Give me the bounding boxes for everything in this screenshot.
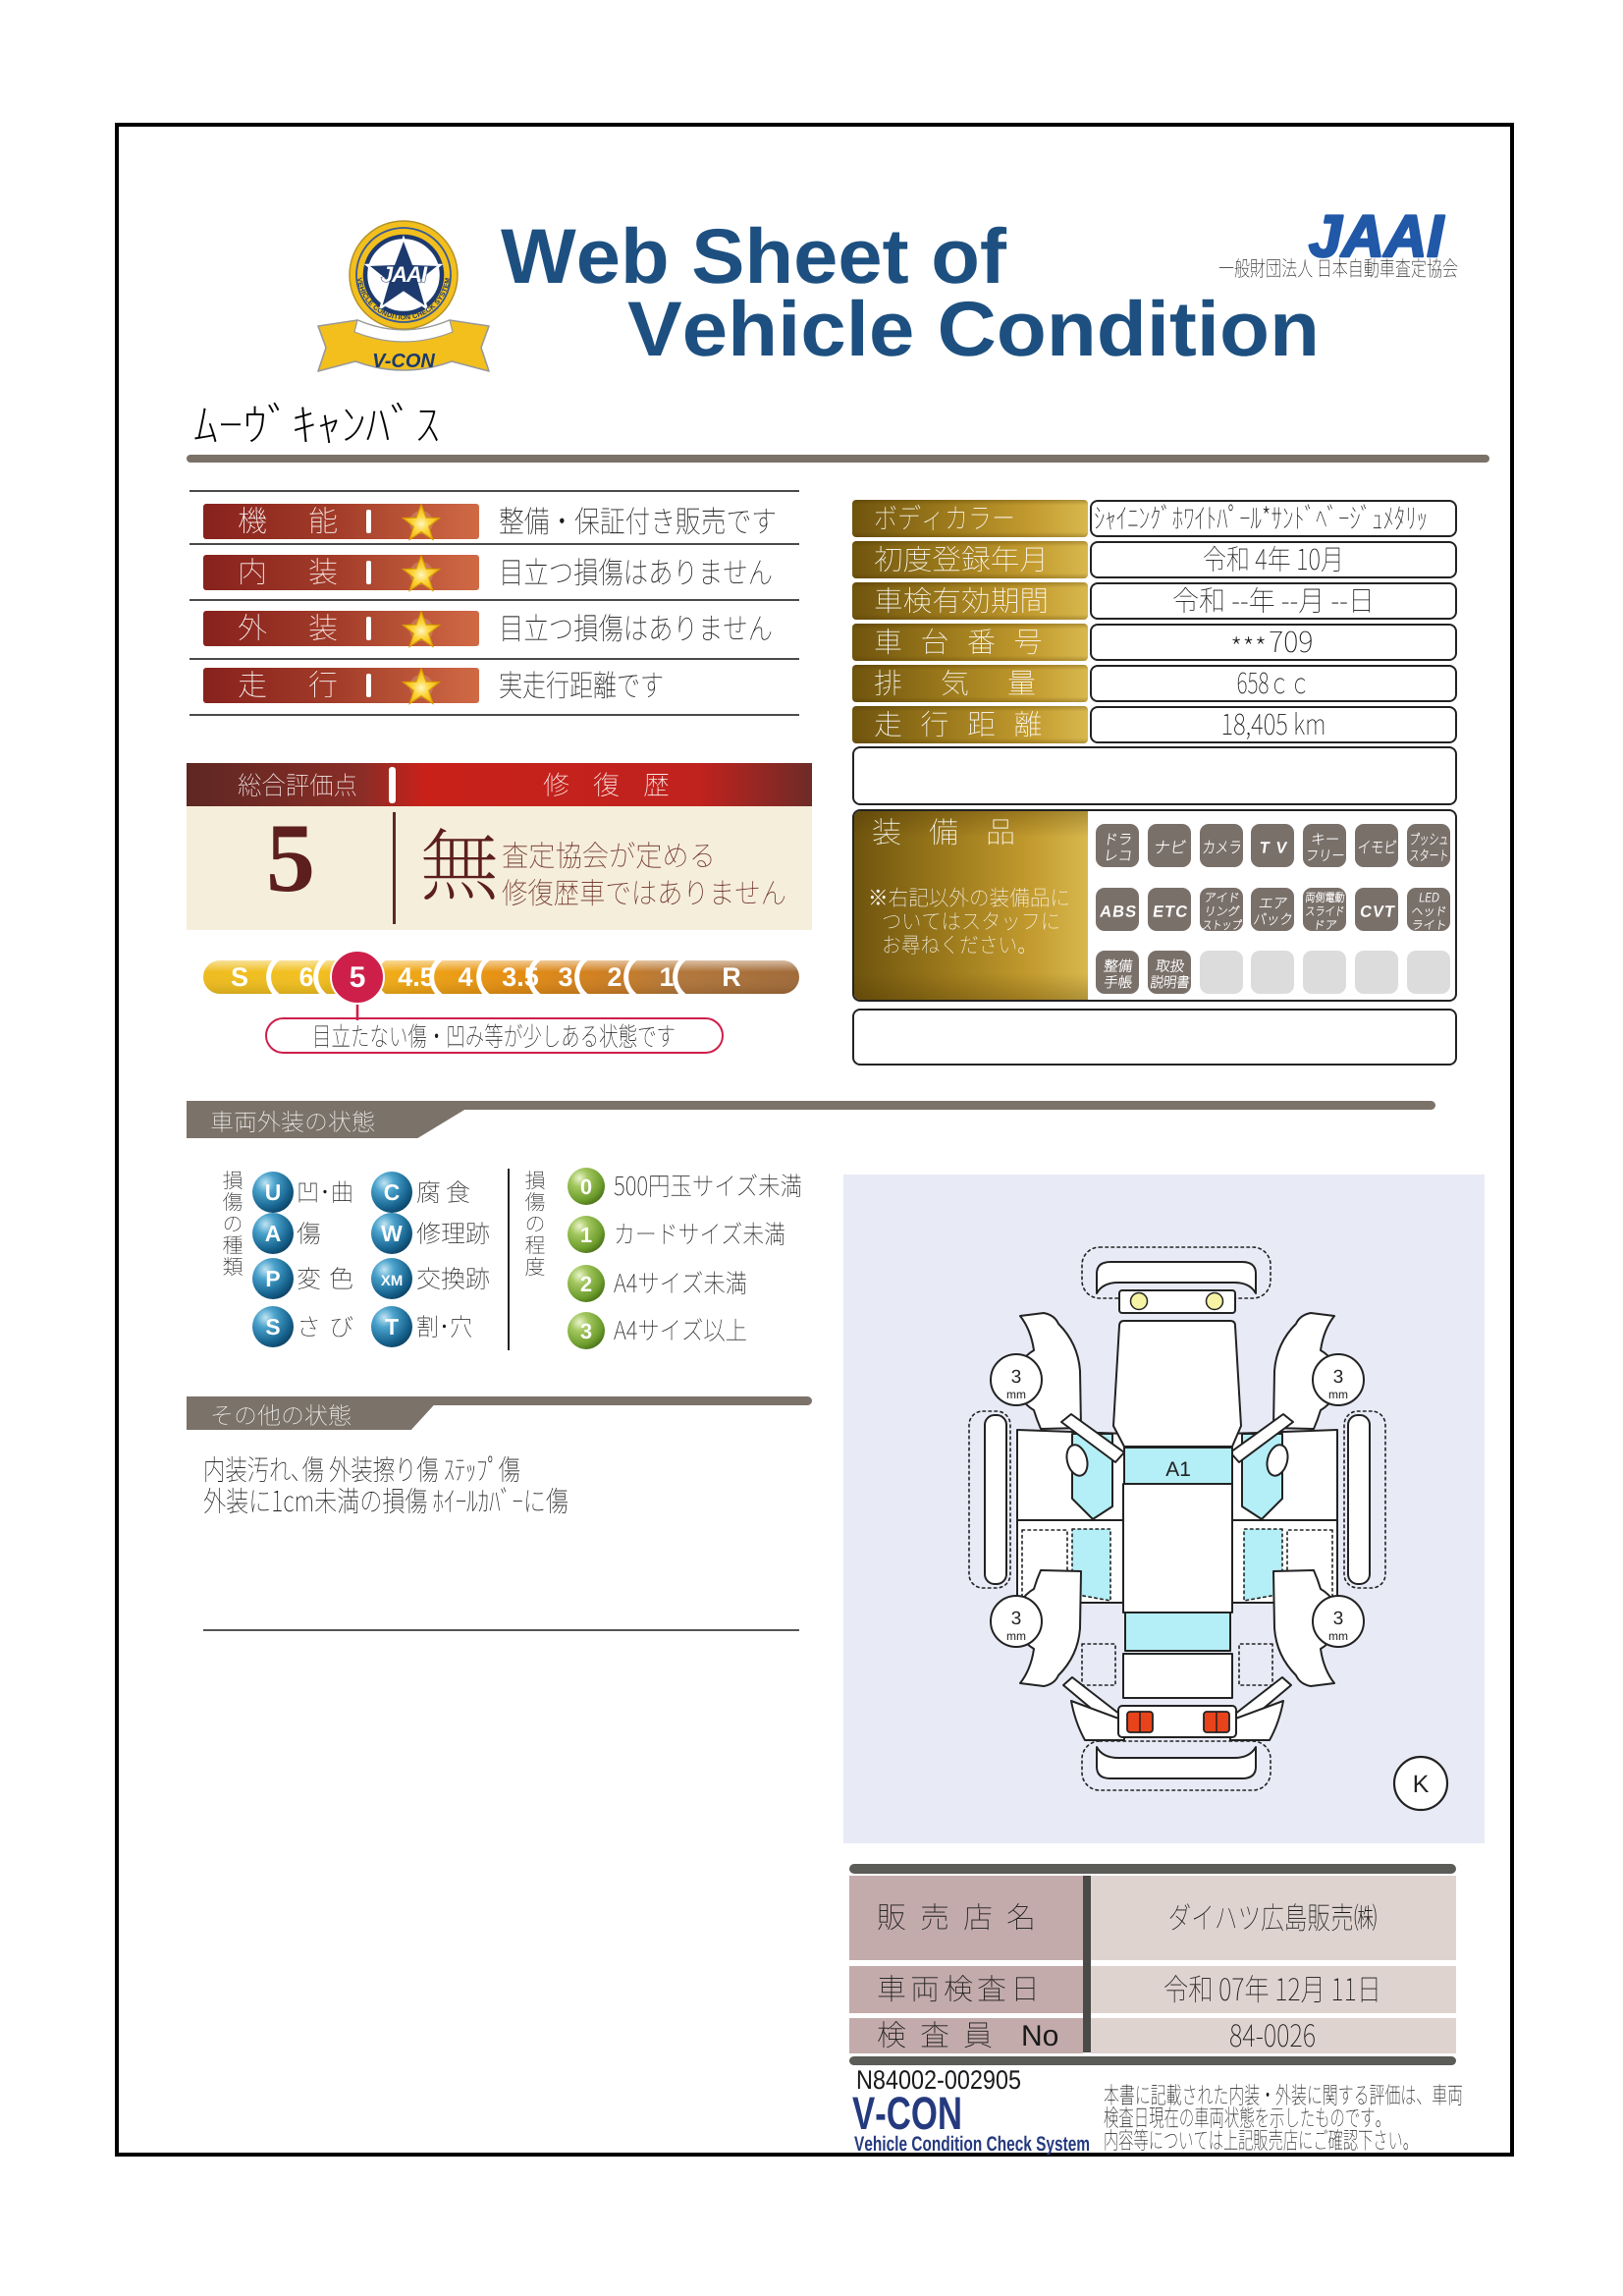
svg-text:JAAI: JAAI (381, 262, 428, 287)
svg-text:V-CON: V-CON (372, 351, 435, 372)
